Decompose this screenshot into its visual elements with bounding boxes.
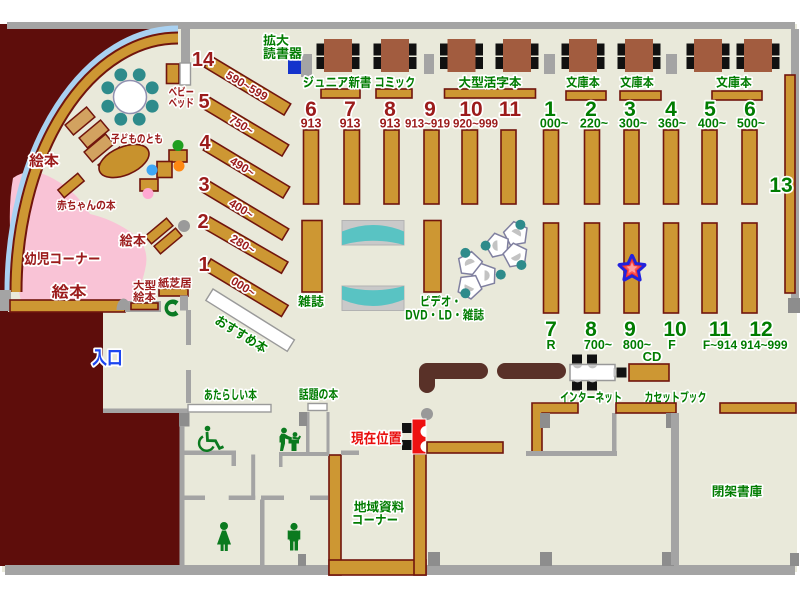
svg-text:400~: 400~ <box>698 117 726 131</box>
svg-text:500~: 500~ <box>737 117 765 131</box>
svg-text:913: 913 <box>380 117 401 131</box>
svg-text:R: R <box>546 338 555 352</box>
svg-text:913~919: 913~919 <box>405 119 450 131</box>
svg-text:2: 2 <box>197 211 208 233</box>
svg-text:5: 5 <box>198 91 209 113</box>
svg-text:220~: 220~ <box>580 117 608 131</box>
svg-text:3: 3 <box>198 174 209 196</box>
svg-text:1: 1 <box>198 254 209 276</box>
svg-text:300~: 300~ <box>619 117 647 131</box>
svg-text:4: 4 <box>199 132 211 154</box>
svg-text:913: 913 <box>301 117 322 131</box>
svg-text:11: 11 <box>499 98 522 121</box>
svg-text:700~: 700~ <box>584 338 612 352</box>
svg-text:913: 913 <box>340 117 361 131</box>
svg-text:13: 13 <box>769 174 792 197</box>
svg-text:F~914: F~914 <box>703 338 738 352</box>
svg-text:914~999: 914~999 <box>740 338 787 352</box>
svg-text:000~: 000~ <box>540 117 568 131</box>
svg-text:360~: 360~ <box>658 117 686 131</box>
svg-text:14: 14 <box>192 49 215 71</box>
svg-text:CD: CD <box>643 349 662 364</box>
svg-text:920~999: 920~999 <box>453 119 498 131</box>
svg-text:F: F <box>668 338 676 352</box>
